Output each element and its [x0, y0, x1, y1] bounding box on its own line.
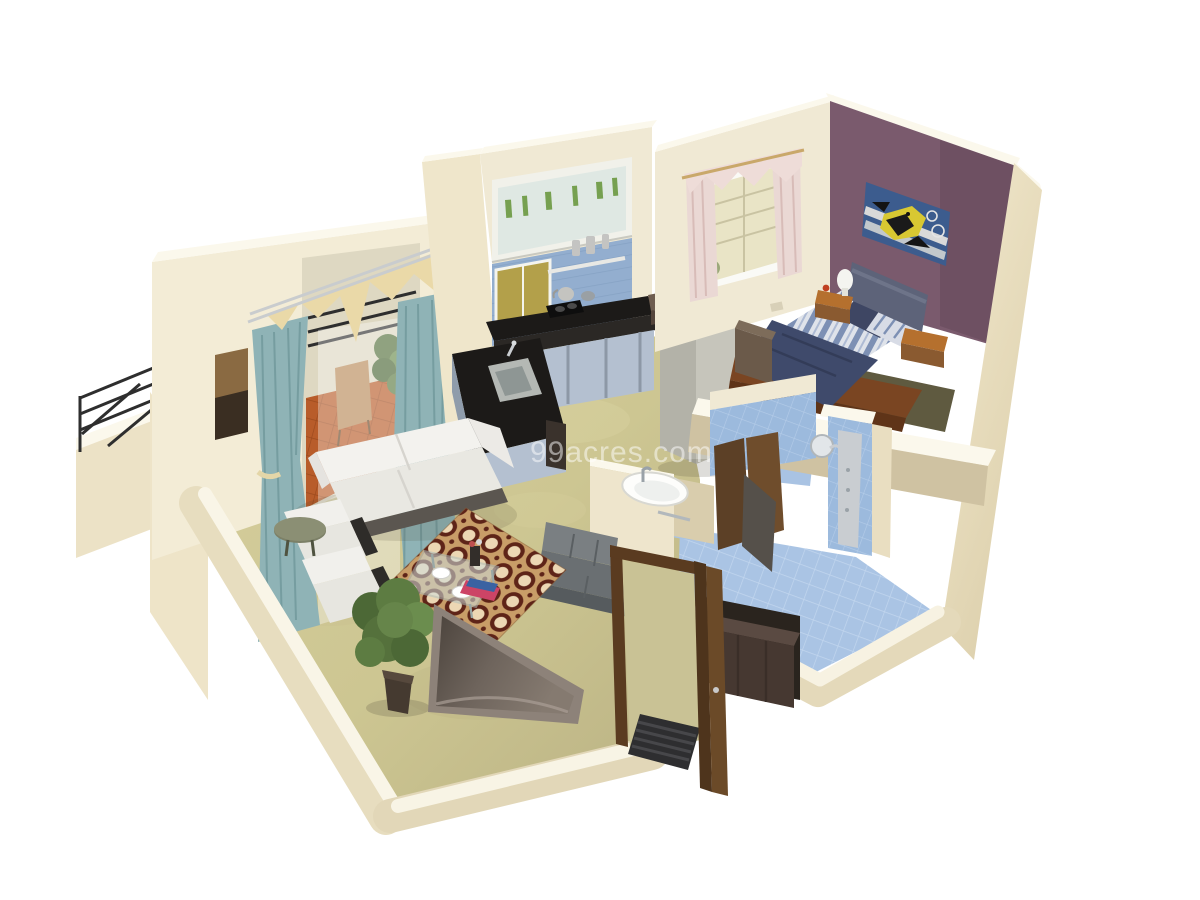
shower-head-icon	[811, 435, 833, 457]
alarm-clock	[823, 285, 830, 292]
vase	[470, 546, 480, 566]
floorplan-render: 99acres.com	[0, 0, 1200, 900]
watermark: 99acres.com	[530, 436, 713, 469]
door-handle-icon	[713, 687, 719, 693]
nightstand-right	[901, 328, 948, 368]
shower-panel	[838, 430, 862, 548]
cup	[432, 568, 450, 579]
wall-art-left	[215, 348, 248, 440]
floorplan-screenshot: 99acres.com	[0, 0, 1200, 900]
